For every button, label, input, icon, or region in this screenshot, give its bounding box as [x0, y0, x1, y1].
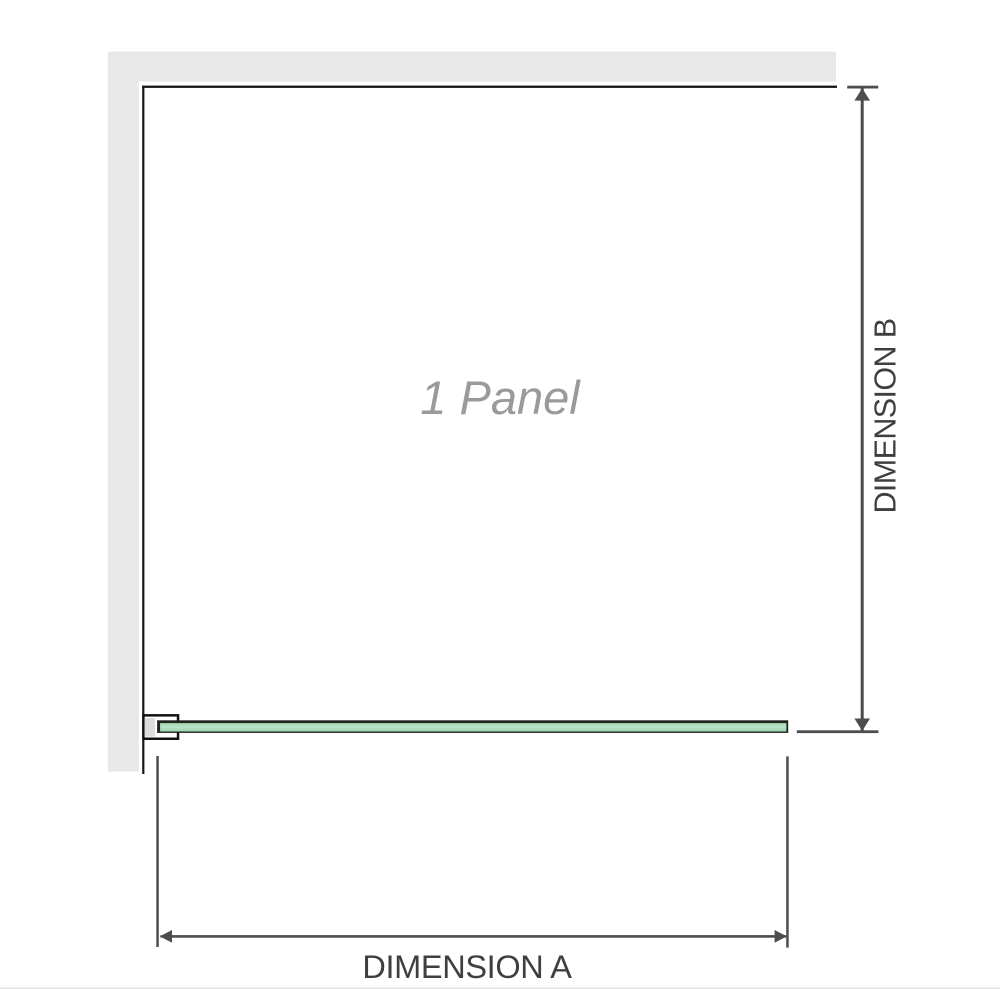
- svg-text:1 Panel: 1 Panel: [420, 371, 581, 424]
- svg-text:DIMENSION B: DIMENSION B: [869, 318, 903, 513]
- svg-text:DIMENSION A: DIMENSION A: [362, 949, 572, 985]
